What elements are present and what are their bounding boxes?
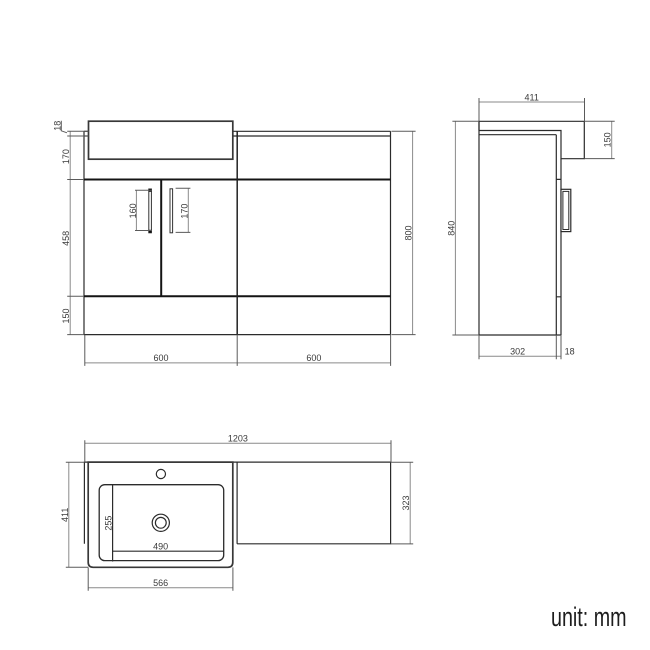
svg-text:1203: 1203 xyxy=(228,433,248,443)
svg-text:18: 18 xyxy=(52,121,62,131)
svg-text:600: 600 xyxy=(306,353,321,363)
svg-text:160: 160 xyxy=(128,203,138,218)
svg-text:150: 150 xyxy=(603,132,613,147)
svg-text:150: 150 xyxy=(61,308,71,323)
svg-text:323: 323 xyxy=(401,495,411,510)
svg-text:302: 302 xyxy=(510,346,525,356)
svg-text:unit: mm: unit: mm xyxy=(551,603,627,633)
svg-text:566: 566 xyxy=(153,578,168,588)
svg-text:490: 490 xyxy=(153,541,168,551)
svg-text:800: 800 xyxy=(404,225,414,240)
svg-text:840: 840 xyxy=(446,221,456,236)
svg-text:411: 411 xyxy=(525,92,539,102)
svg-text:600: 600 xyxy=(153,353,168,363)
svg-text:458: 458 xyxy=(61,231,71,246)
svg-text:411: 411 xyxy=(60,508,70,522)
svg-text:18: 18 xyxy=(565,346,575,356)
svg-text:170: 170 xyxy=(180,204,190,219)
svg-text:255: 255 xyxy=(104,516,114,531)
svg-text:170: 170 xyxy=(61,149,71,164)
